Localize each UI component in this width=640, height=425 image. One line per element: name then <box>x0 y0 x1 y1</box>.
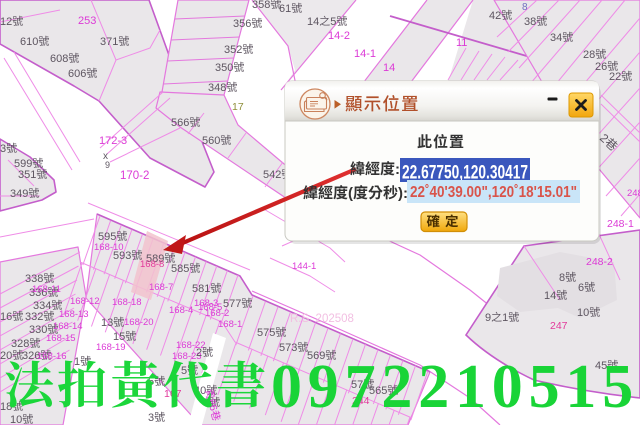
svg-text:168-13: 168-13 <box>59 309 89 320</box>
svg-text:352: 352 <box>224 44 242 56</box>
svg-text:22˚40'39.00",120˚18'15.01": 22˚40'39.00",120˚18'15.01" <box>410 184 577 201</box>
svg-text:11: 11 <box>456 37 467 49</box>
svg-text:575: 575 <box>257 327 275 339</box>
svg-text:12: 12 <box>0 16 12 28</box>
svg-text:14-2: 14-2 <box>328 30 350 42</box>
svg-text:34: 34 <box>550 32 562 44</box>
svg-text:42: 42 <box>489 10 501 22</box>
svg-text:(: ( <box>348 185 353 202</box>
svg-text:14: 14 <box>544 290 556 302</box>
svg-text:2: 2 <box>196 347 202 359</box>
svg-text:22: 22 <box>609 71 621 83</box>
svg-text:349: 349 <box>10 188 28 200</box>
svg-text:172-3: 172-3 <box>99 135 127 147</box>
svg-text:0972210515: 0972210515 <box>271 353 639 421</box>
svg-text:16: 16 <box>0 311 12 323</box>
svg-text:15: 15 <box>113 331 125 343</box>
svg-text:168-11: 168-11 <box>32 284 61 295</box>
svg-text:14: 14 <box>383 62 395 74</box>
svg-text:3: 3 <box>148 412 154 424</box>
svg-text:348: 348 <box>208 82 226 94</box>
svg-text:247: 247 <box>550 320 568 332</box>
svg-text:168-15: 168-15 <box>46 333 76 344</box>
svg-text:6: 6 <box>578 282 584 294</box>
svg-text:13: 13 <box>101 317 113 329</box>
svg-text:):: ): <box>398 185 408 202</box>
svg-text:593: 593 <box>113 250 131 262</box>
svg-text:10: 10 <box>577 307 589 319</box>
svg-text:26: 26 <box>595 61 607 73</box>
svg-text:61: 61 <box>279 3 291 15</box>
svg-text:38: 38 <box>524 16 536 28</box>
svg-text:5: 5 <box>330 16 336 28</box>
svg-text:351: 351 <box>18 169 36 181</box>
svg-text:9: 9 <box>485 312 491 324</box>
svg-text:170-2: 170-2 <box>120 170 149 182</box>
svg-text:168-14: 168-14 <box>53 321 83 332</box>
svg-text:542: 542 <box>263 169 281 181</box>
svg-text:168-12: 168-12 <box>70 296 100 307</box>
svg-text:9: 9 <box>105 160 110 170</box>
svg-text:581: 581 <box>192 283 210 295</box>
svg-text:168-4: 168-4 <box>169 305 193 316</box>
svg-text:560: 560 <box>202 135 220 147</box>
svg-text:1: 1 <box>502 312 508 324</box>
svg-text:168-19: 168-19 <box>96 342 126 353</box>
svg-text:350: 350 <box>215 62 233 74</box>
svg-text:610: 610 <box>20 36 38 48</box>
svg-text:566: 566 <box>171 117 189 129</box>
svg-text:585: 585 <box>171 263 189 275</box>
svg-text:168-8: 168-8 <box>140 259 164 270</box>
svg-text:253: 253 <box>78 15 96 27</box>
svg-text:1: 1 <box>74 356 80 368</box>
svg-text:144-1: 144-1 <box>292 261 316 272</box>
svg-text:248-1: 248-1 <box>607 218 634 230</box>
svg-text:17: 17 <box>232 101 244 113</box>
svg-text:328: 328 <box>11 338 29 350</box>
svg-text:168-7: 168-7 <box>149 282 173 293</box>
svg-text:20: 20 <box>0 350 12 362</box>
svg-text:8: 8 <box>522 2 528 13</box>
svg-text:14-1: 14-1 <box>354 48 376 60</box>
svg-text:356: 356 <box>233 18 251 30</box>
svg-text:168-1: 168-1 <box>218 319 242 330</box>
svg-text:330: 330 <box>29 324 47 336</box>
svg-text:168-2: 168-2 <box>205 308 229 319</box>
svg-text:608: 608 <box>50 53 68 65</box>
svg-text:8: 8 <box>559 272 565 284</box>
svg-text:248-2: 248-2 <box>586 256 613 268</box>
svg-text:371: 371 <box>100 36 118 48</box>
svg-text:168-16: 168-16 <box>37 351 67 362</box>
svg-text:28: 28 <box>583 49 595 61</box>
svg-text::: : <box>395 161 400 178</box>
svg-text:358: 358 <box>252 0 270 11</box>
svg-text:R.S. 202508: R.S. 202508 <box>290 313 354 325</box>
svg-text:606: 606 <box>68 68 86 80</box>
svg-text:5: 5 <box>181 365 187 377</box>
svg-text:14: 14 <box>307 16 319 28</box>
svg-text:168-20: 168-20 <box>124 317 154 328</box>
svg-text:168-18: 168-18 <box>112 297 142 308</box>
svg-text:10: 10 <box>10 414 22 425</box>
svg-text:248: 248 <box>627 188 640 199</box>
svg-text:332: 332 <box>25 311 43 323</box>
svg-text:3: 3 <box>0 143 6 155</box>
